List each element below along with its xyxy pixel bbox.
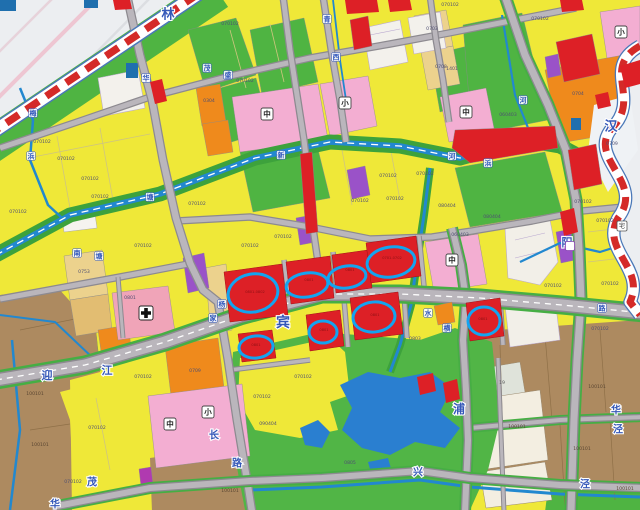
parcel-commercial-red — [443, 379, 460, 403]
road-name-char: 浜 — [28, 152, 35, 161]
parcel-code-label: 080404 — [438, 203, 456, 209]
parcel-code-label: 0801 — [319, 328, 328, 332]
place-name-char: 林 — [161, 7, 174, 23]
parcel-code-label: 070102 — [236, 78, 254, 84]
parcel-code-label: 070102 — [601, 281, 619, 287]
parcel-code-label: 0801 — [251, 343, 260, 347]
parcel-code-label: 070102 — [64, 479, 82, 485]
place-name-char: 浦 — [453, 401, 465, 416]
road-name-char: 塘 — [96, 252, 103, 261]
parcel-code-label: 0701-0702 — [382, 256, 402, 260]
road-name-char: 河 — [449, 152, 456, 161]
road-name-char: 横 — [444, 324, 451, 333]
parcel-code-label: 070102 — [294, 374, 312, 380]
school-icon-char: 小 — [341, 98, 349, 108]
road-name-char: 家 — [210, 314, 218, 323]
parcel-code-label: 0801 — [124, 295, 136, 301]
place-name-char: 江 — [102, 363, 113, 377]
parcel-code-label: 100101 — [573, 446, 591, 452]
parcel-code-label: 100101 — [508, 424, 526, 430]
parcel-code-label: 100101 — [26, 391, 44, 397]
parcel-code-label: 0753 — [78, 269, 90, 275]
parcel-commercial-red — [417, 373, 436, 395]
parcel-commercial-red — [345, 0, 379, 14]
parcel-code-label: 080404 — [483, 214, 501, 220]
parcel-code-label: 100101 — [616, 486, 634, 492]
place-name-char: 茂 — [87, 476, 97, 489]
school-icon-char: 中 — [263, 109, 271, 119]
water-pond — [84, 0, 98, 8]
parcel-code-label: 090404 — [259, 421, 277, 427]
parcel-code-label: 070102 — [591, 326, 609, 332]
parcel-code-label: 070102 — [91, 194, 109, 200]
place-name-char: 华 — [611, 404, 621, 417]
parcel-code-label: 060403 — [451, 232, 469, 238]
place-name-char: 长 — [209, 429, 220, 442]
parcel-commercial-red — [388, 0, 412, 12]
parcel-code-label: 070102 — [57, 156, 75, 162]
parcel-purple — [545, 54, 561, 78]
school-icon-char: 小 — [204, 407, 212, 417]
place-name-char: 宾 — [276, 314, 290, 331]
water-pond — [571, 118, 581, 130]
road-name-char: 新 — [278, 151, 285, 160]
parcel-code-label: 070102 — [134, 243, 152, 249]
parcel-code-label: 070102 — [544, 283, 562, 289]
parcel-code-label: 070102 — [441, 2, 459, 8]
road-name-char: 青 — [324, 15, 331, 24]
facility-box-icon — [566, 242, 575, 251]
parcel-code-label: 070102 — [386, 196, 404, 202]
parcel-code-label: 070102 — [9, 209, 27, 215]
planning-map: 0701020701020701020701020701020701020701… — [0, 0, 640, 510]
parcel-code-label: 070102 — [574, 199, 592, 205]
place-name-char: 泾 — [580, 478, 590, 491]
road-name-char: 南 — [74, 249, 81, 258]
road-name-char: 塘 — [147, 193, 154, 202]
parcel-code-label: 070102 — [379, 173, 397, 179]
place-name-char: 兴 — [413, 466, 423, 479]
parcel-code-label: 070102 — [134, 374, 152, 380]
parcel-code-label: 1401 — [446, 66, 458, 72]
parcel-orange — [434, 302, 455, 325]
parcel-code-label: 0801-0802 — [245, 290, 265, 294]
parcel-commercial-red — [350, 16, 372, 50]
place-name-char: 路 — [232, 457, 243, 470]
parcel-code-label: 060403 — [499, 112, 517, 118]
school-icon-char: 中 — [462, 107, 470, 117]
parcel-code-label: 0703 — [426, 26, 438, 32]
road-name-char: 西 — [333, 54, 340, 62]
parcel-commercial-red — [556, 34, 600, 82]
parcel-code-label: 070102 — [416, 171, 434, 177]
parcel-code-label: 100101 — [588, 384, 606, 390]
house-icon-char: 宅 — [619, 222, 625, 230]
parcel-code-label: 070102 — [221, 21, 239, 27]
place-name-char: 华 — [50, 498, 60, 510]
road-name-char: 河 — [520, 96, 527, 105]
place-name-char: 汉 — [604, 119, 618, 135]
road-name-char: 水 — [425, 309, 433, 318]
road-name-char: 路 — [599, 304, 607, 313]
parcel-code-label: 070102 — [253, 394, 271, 400]
parcel-code-label: 070102 — [241, 243, 259, 249]
parcel-code-label: 070102 — [33, 139, 51, 145]
parcel-code-label: 0709 — [189, 368, 201, 374]
parcel-code-label: 070102 — [274, 234, 292, 240]
parcel-code-label: 0801 — [370, 313, 379, 317]
parcel-code-label: 070102 — [531, 16, 549, 22]
parcel-code-label: 0805 — [344, 460, 356, 466]
parcel-commercial-red — [568, 144, 602, 190]
school-icon-char: 中 — [166, 419, 174, 429]
road-name-char: 华 — [143, 74, 150, 83]
parcel-commercial-red — [560, 0, 584, 12]
parcel-code-label: 0803 — [409, 336, 421, 342]
water-pond — [126, 63, 138, 78]
road-name-char: 浜 — [485, 159, 492, 168]
parcel-code-label: 0801 — [478, 317, 487, 321]
school-icon-char: 小 — [617, 27, 625, 37]
school-icon-char: 中 — [448, 255, 456, 265]
road-name-char: 杨 — [219, 300, 226, 309]
parcel-code-label: 0801 — [304, 278, 313, 282]
place-name-char: 泾 — [613, 423, 623, 436]
parcel-code-label: 070102 — [351, 198, 369, 204]
parcel-code-label: 0708 — [435, 64, 447, 70]
water-pond — [0, 0, 16, 11]
parcel-code-label: 070102 — [596, 218, 614, 224]
parcel-code-label: 0801 — [345, 268, 354, 272]
parcel-commercial-red — [113, 0, 132, 10]
parcel-code-label: 100101 — [31, 442, 49, 448]
parcel-code-label: 070102 — [81, 176, 99, 182]
road-name-char: 盛 — [225, 71, 232, 80]
place-name-char: 迎 — [42, 368, 53, 382]
parcel-code-label: 0709 — [606, 141, 618, 147]
road-name-char: 茂 — [204, 64, 211, 73]
parcel-code-label: 100101 — [221, 488, 239, 494]
parcel-code-label: 0304 — [203, 98, 215, 104]
zoning-map-canvas: 0701020701020701020701020701020701020701… — [0, 0, 640, 510]
parcel-code-label: 0704 — [572, 91, 584, 97]
parcel-code-label: 070102 — [188, 201, 206, 207]
road-name-char: 梅 — [30, 109, 37, 118]
parcel-code-label: 19 — [499, 380, 505, 386]
parcel-code-label: 070102 — [88, 425, 106, 431]
